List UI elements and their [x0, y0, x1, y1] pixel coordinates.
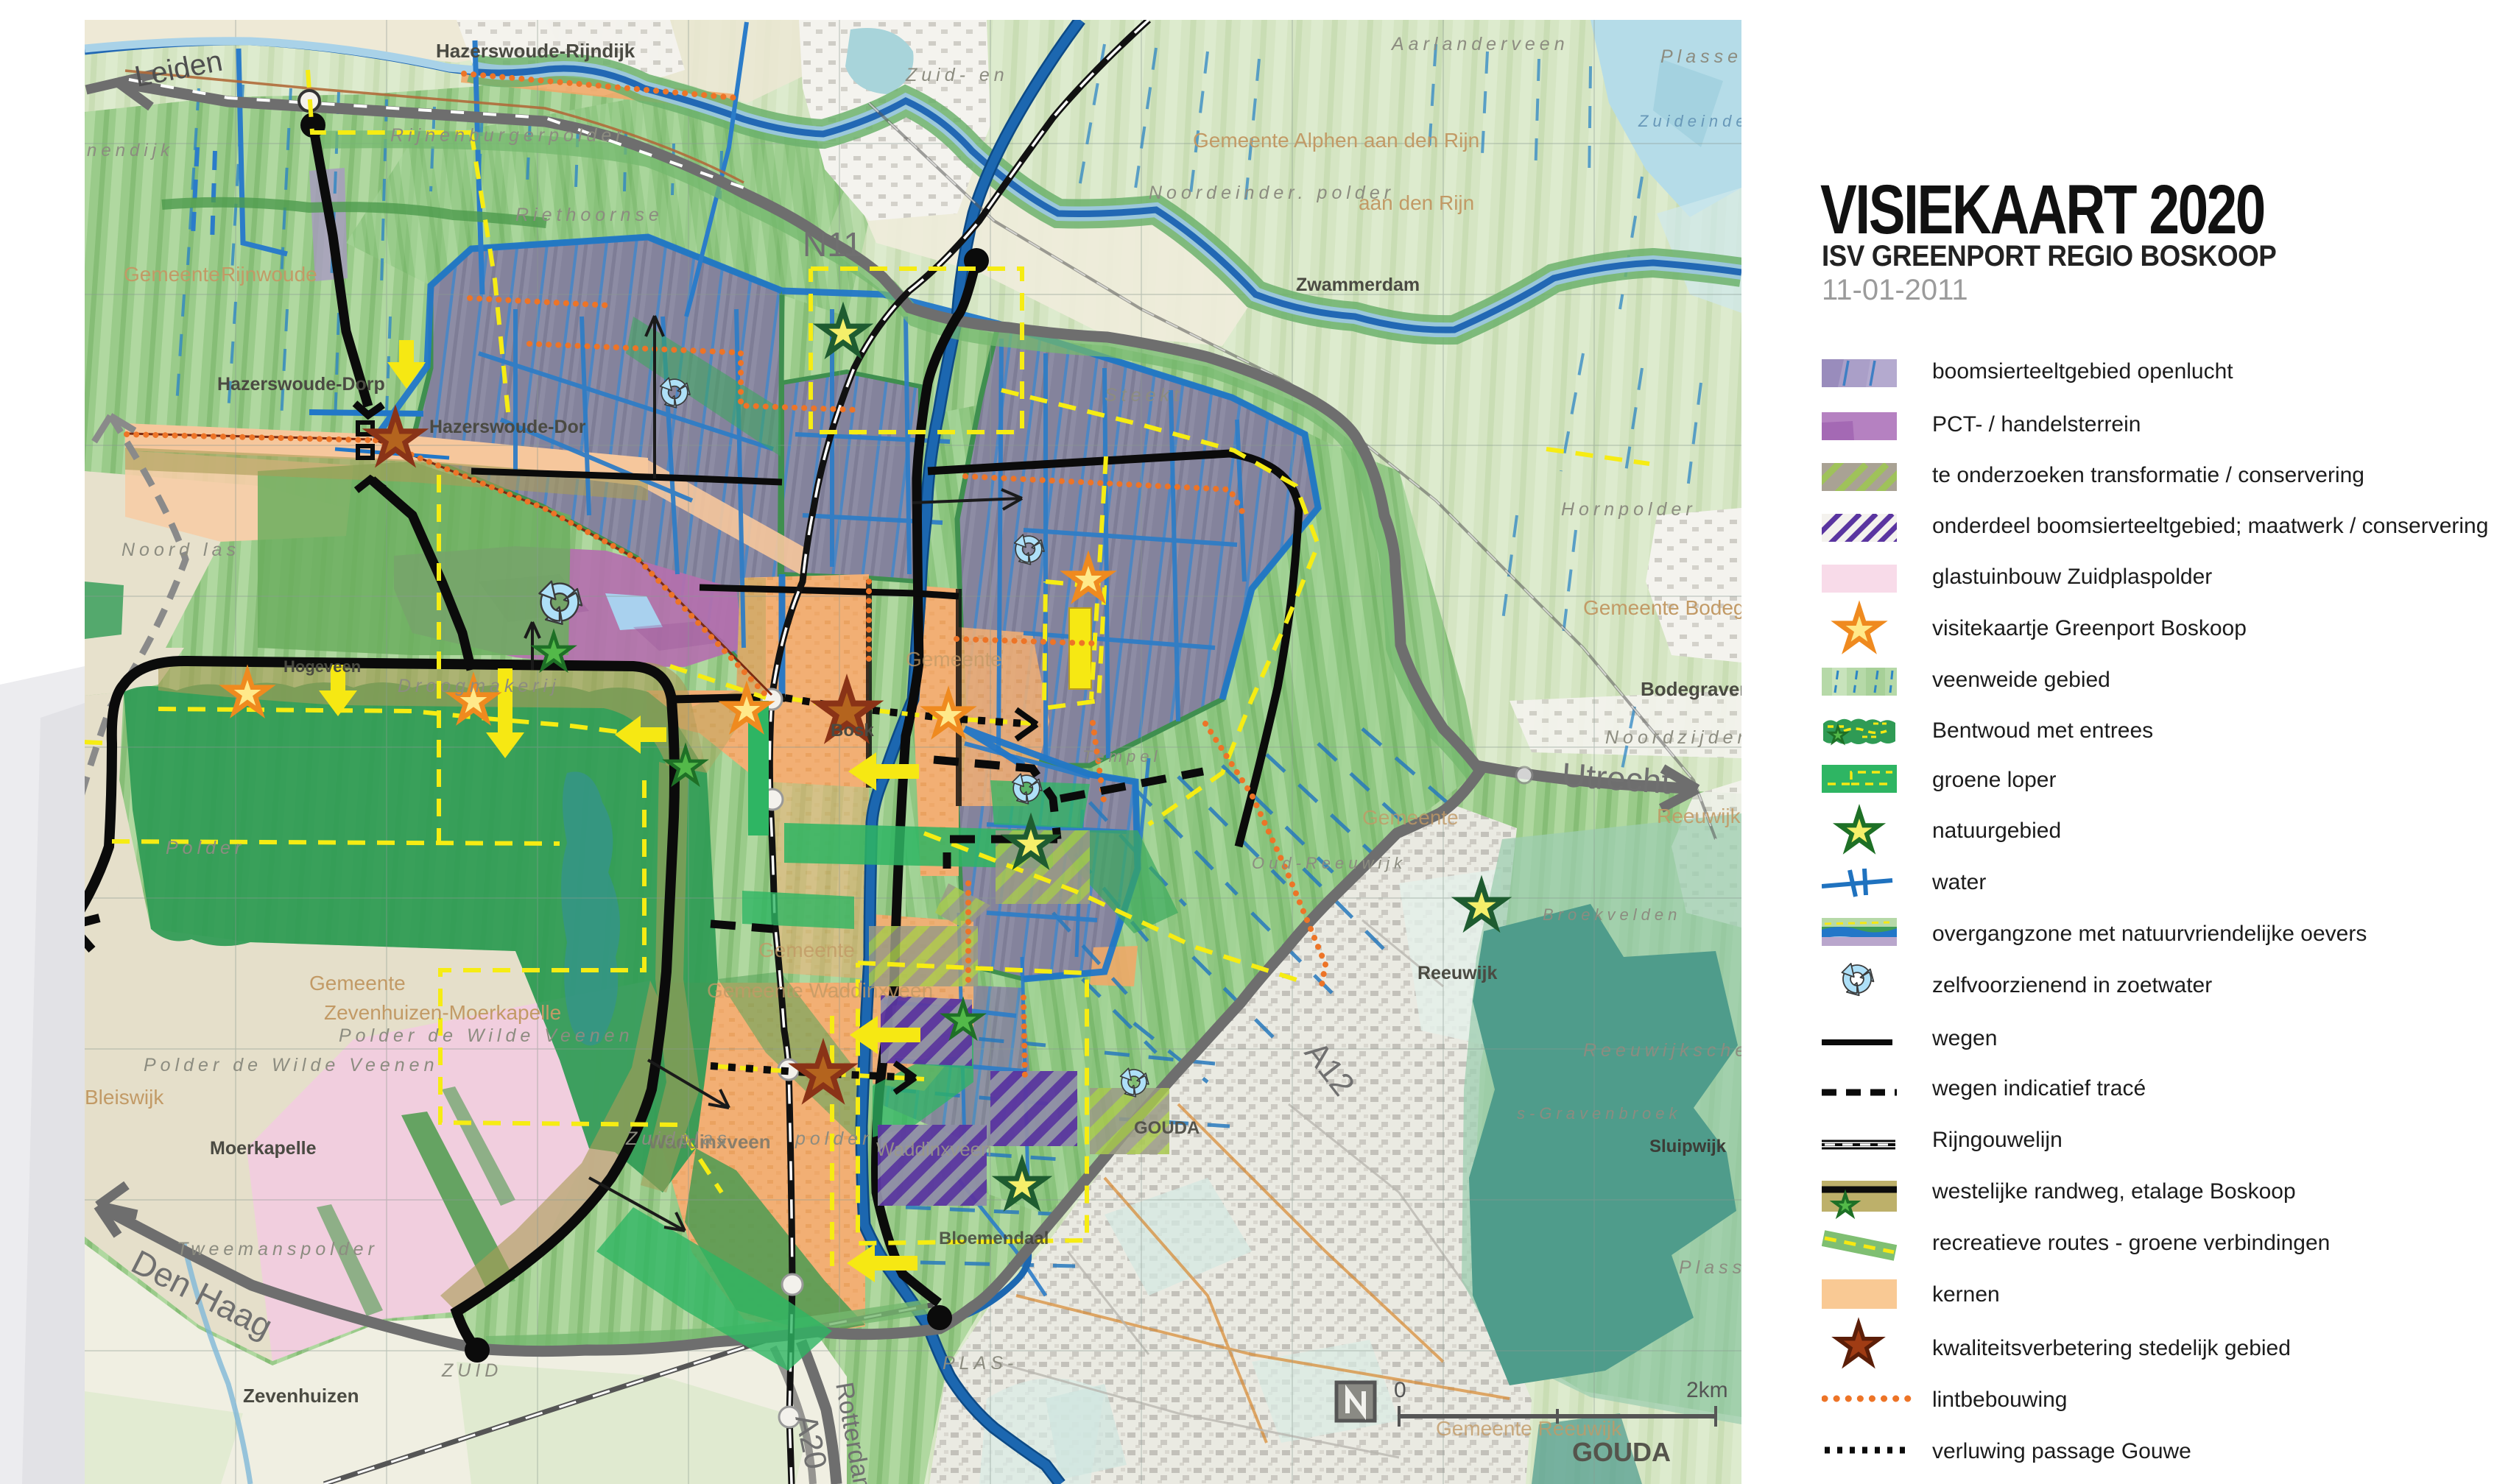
svg-text:nendijk: nendijk: [87, 141, 174, 160]
svg-text:Bleiswijk: Bleiswijk: [85, 1086, 164, 1109]
svg-text:Zuideinderplas: Zuideinderplas: [1638, 112, 1806, 130]
svg-text:Gemeente Bodegraven: Gemeente Bodegraven: [1583, 596, 1797, 619]
svg-text:Noordeinder. polder: Noordeinder. polder: [1149, 183, 1395, 203]
svg-text:Plassen: Plassen: [1660, 46, 1757, 67]
svg-text:Polder de Wilde Veenen: Polder de Wilde Veenen: [144, 1055, 438, 1075]
svg-text:Aarlanderveen: Aarlanderveen: [1390, 34, 1569, 54]
svg-text:N11: N11: [803, 225, 862, 264]
svg-text:Gemeente: Gemeente: [309, 972, 406, 994]
svg-text:Plassen: Plassen: [1679, 1257, 1775, 1278]
svg-text:Gemeente: Gemeente: [906, 648, 1002, 671]
svg-text:Oud-Reeuwijk: Oud-Reeuwijk: [1252, 854, 1406, 872]
svg-text:PLAS-: PLAS-: [943, 1353, 1018, 1374]
svg-text:Moerkapelle: Moerkapelle: [210, 1138, 317, 1159]
svg-text:Waddinxveen: Waddinxveen: [876, 1138, 992, 1160]
svg-text:Hogeveen: Hogeveen: [283, 657, 361, 676]
svg-text:GOUDA: GOUDA: [1572, 1437, 1671, 1467]
svg-text:Reeuwijk: Reeuwijk: [1417, 963, 1497, 983]
svg-text:Droogmakerij: Droogmakerij: [398, 676, 560, 696]
svg-text:Reeuwijk: Reeuwijk: [1657, 805, 1741, 827]
svg-text:Noord las: Noord las: [121, 540, 240, 560]
svg-text:Zwammerdam: Zwammerdam: [1296, 275, 1420, 295]
svg-text:Hazerswoude-Dorp: Hazerswoude-Dorp: [217, 374, 385, 395]
svg-text:Rijnwoude: Rijnwoude: [221, 263, 317, 286]
svg-text:Zuidplas: Zuidplas: [625, 1128, 731, 1149]
svg-text:Riethoornse: Riethoornse: [515, 205, 663, 225]
svg-text:2km: 2km: [1686, 1378, 1728, 1402]
svg-text:Gemeente Alphen aan den Rijn: Gemeente Alphen aan den Rijn: [1193, 129, 1479, 152]
svg-text:Hazerswoude-Dor: Hazerswoude-Dor: [429, 417, 586, 437]
svg-text:s-Gravenbroek: s-Gravenbroek: [1517, 1104, 1682, 1123]
svg-text:Gemeente: Gemeente: [758, 939, 855, 961]
svg-text:Gemeente: Gemeente: [124, 263, 220, 286]
svg-text:Bodegraven: Bodegraven: [1641, 678, 1751, 700]
svg-text:Tempel: Tempel: [1082, 747, 1161, 766]
svg-text:GOUDA: GOUDA: [1134, 1118, 1200, 1138]
svg-text:Rijnenburgerpolder: Rijnenburgerpolder: [390, 125, 627, 146]
svg-text:Gemeente Reeuwijk: Gemeente Reeuwijk: [1436, 1417, 1622, 1440]
svg-text:Hornpolder: Hornpolder: [1561, 499, 1697, 520]
svg-text:polder: polder: [795, 1128, 873, 1149]
svg-text:Reeuwijksche: Reeuwijksche: [1583, 1040, 1750, 1061]
svg-text:Noordzijderpolde: Noordzijderpolde: [1605, 727, 1815, 748]
svg-text:Zevenhuizen: Zevenhuizen: [243, 1385, 359, 1407]
svg-text:Polder de Wilde Veenen: Polder de Wilde Veenen: [339, 1025, 633, 1046]
svg-text:Gemeente Waddinxveen: Gemeente Waddinxveen: [707, 979, 933, 1002]
svg-text:Sluipwijk: Sluipwijk: [1649, 1137, 1727, 1156]
svg-text:Hazerswoude-Rijndijk: Hazerswoude-Rijndijk: [436, 40, 635, 62]
svg-text:ZUID: ZUID: [441, 1360, 502, 1381]
svg-text:Bosk: Bosk: [831, 721, 874, 741]
svg-text:0: 0: [1394, 1378, 1406, 1402]
svg-text:Polder: Polder: [166, 838, 245, 858]
svg-text:Steekt: Steekt: [1105, 385, 1183, 406]
svg-text:Utrecht: Utrecht: [1560, 755, 1672, 801]
svg-text:Broekvelden: Broekvelden: [1543, 905, 1681, 924]
svg-text:Zevenhuizen-Moerkapelle: Zevenhuizen-Moerkapelle: [324, 1001, 561, 1024]
svg-text:Tweemanspolder: Tweemanspolder: [177, 1239, 378, 1259]
svg-text:Zuid- en: Zuid- en: [905, 65, 1009, 85]
svg-text:Gemeente: Gemeente: [1362, 806, 1459, 829]
svg-text:Bloemendaal: Bloemendaal: [939, 1229, 1049, 1248]
